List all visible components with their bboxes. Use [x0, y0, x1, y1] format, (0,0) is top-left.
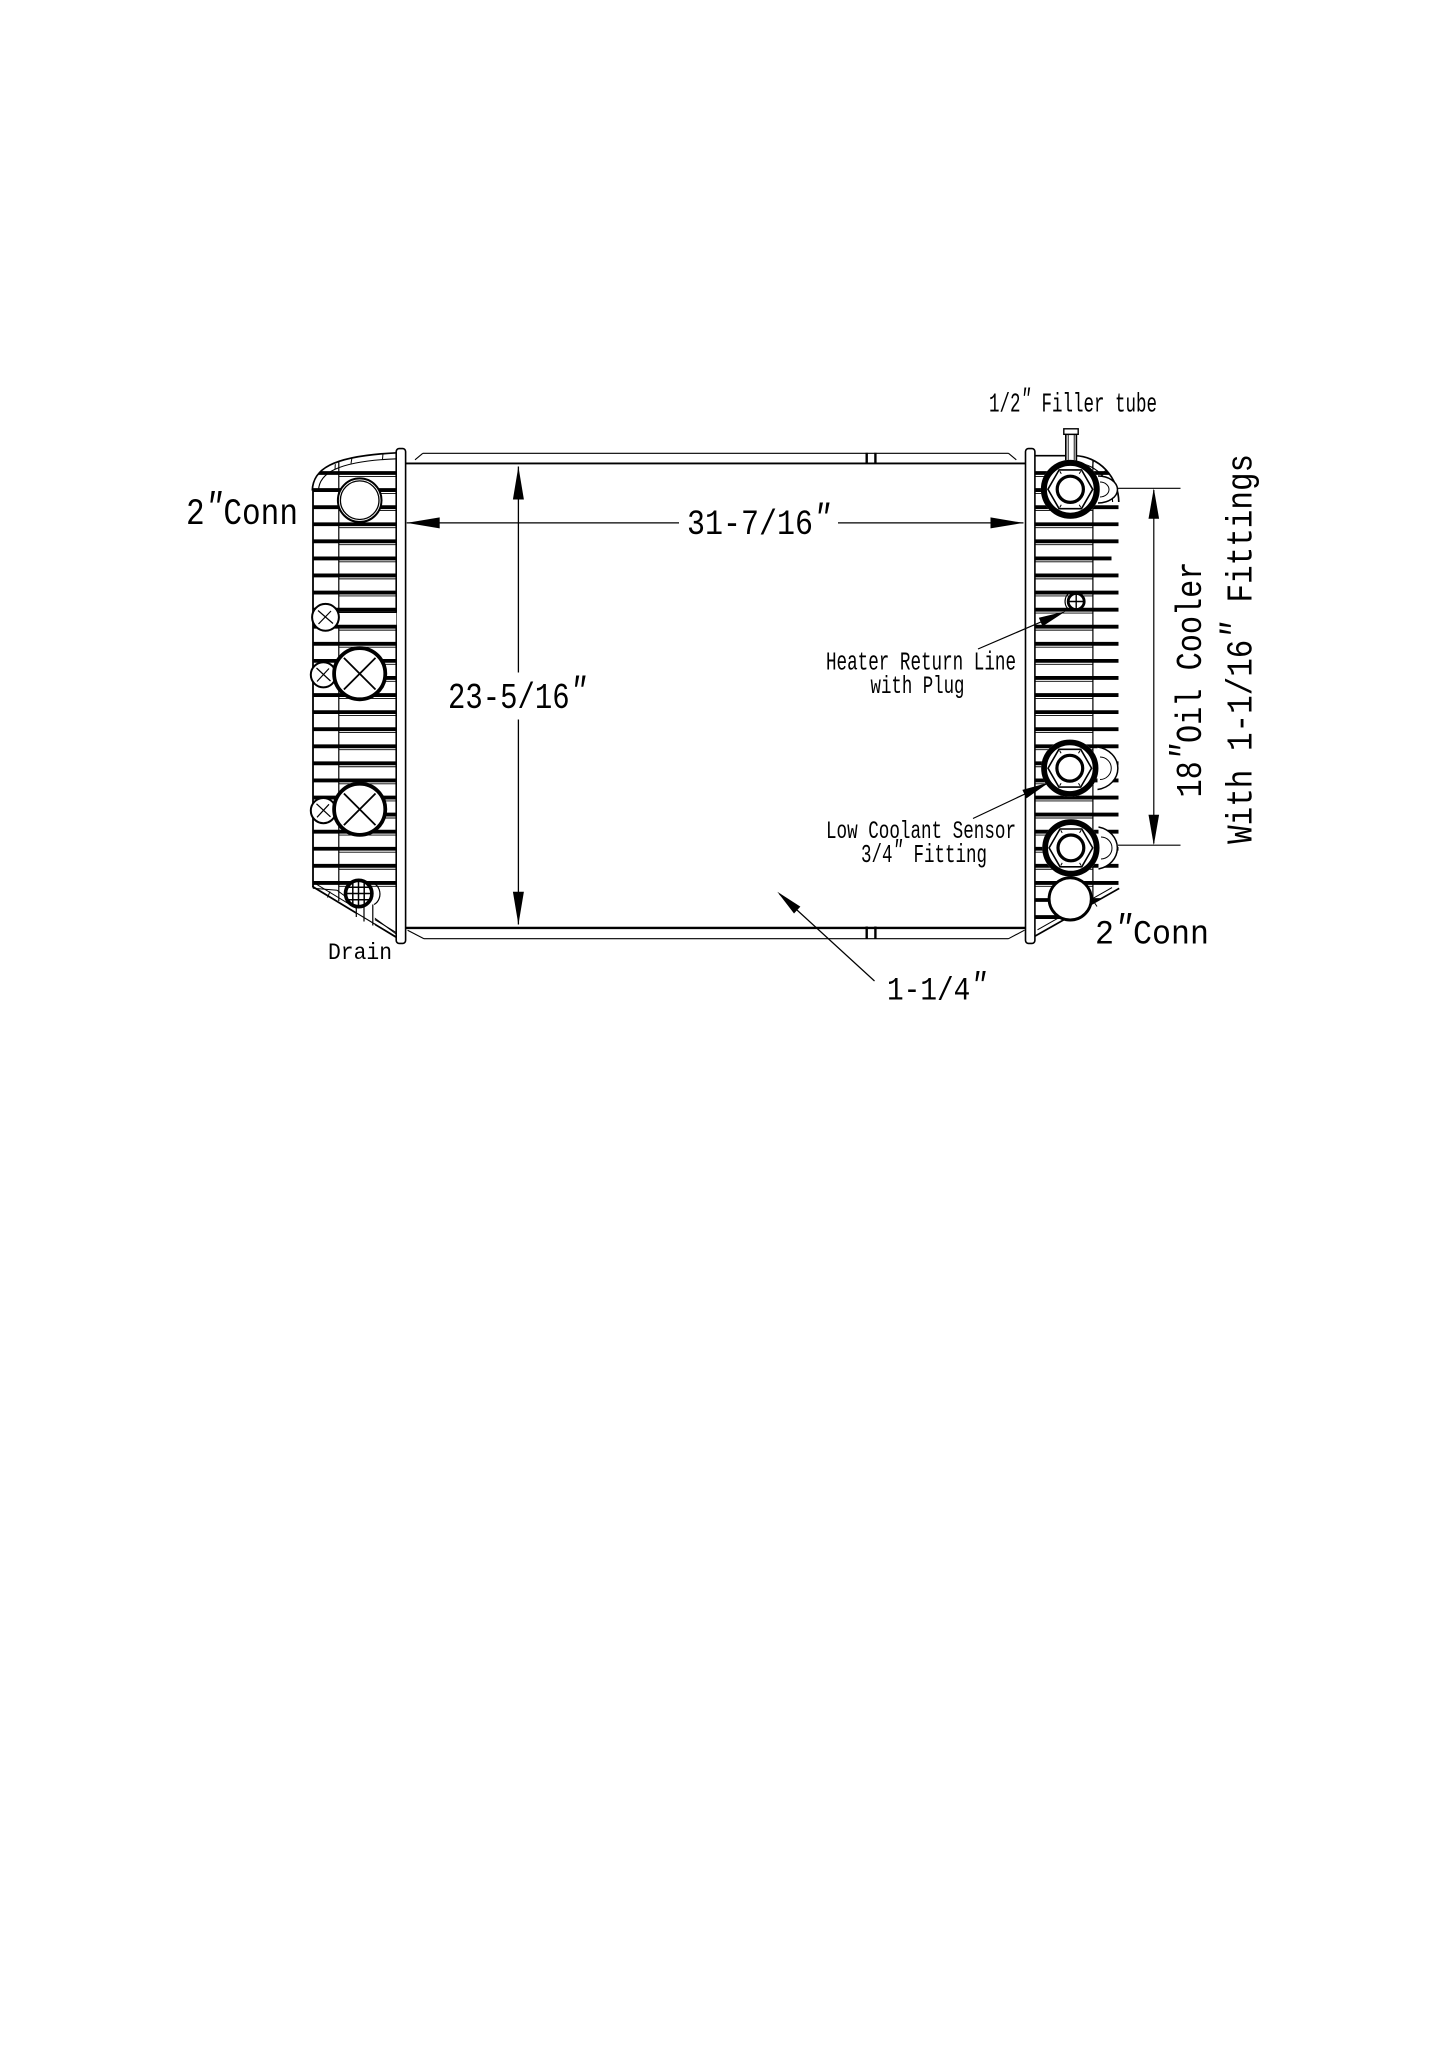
- svg-text:With 1-1/16″ Fittings: With 1-1/16″ Fittings: [1216, 454, 1263, 844]
- svg-text:3/4″ Fitting: 3/4″ Fitting: [861, 836, 987, 870]
- svg-text:1-1/4″: 1-1/4″: [887, 967, 987, 1009]
- svg-text:23-5/16″: 23-5/16″: [448, 672, 587, 719]
- svg-text:2″Conn: 2″Conn: [1095, 911, 1209, 955]
- svg-text:1/2″ Filler tube: 1/2″ Filler tube: [989, 386, 1157, 420]
- svg-text:31-7/16″: 31-7/16″: [687, 500, 831, 545]
- svg-text:2″Conn: 2″Conn: [186, 488, 298, 536]
- svg-text:with Plug: with Plug: [871, 672, 965, 701]
- svg-text:Drain: Drain: [328, 940, 392, 967]
- svg-text:18″Oil Cooler: 18″Oil Cooler: [1165, 562, 1212, 798]
